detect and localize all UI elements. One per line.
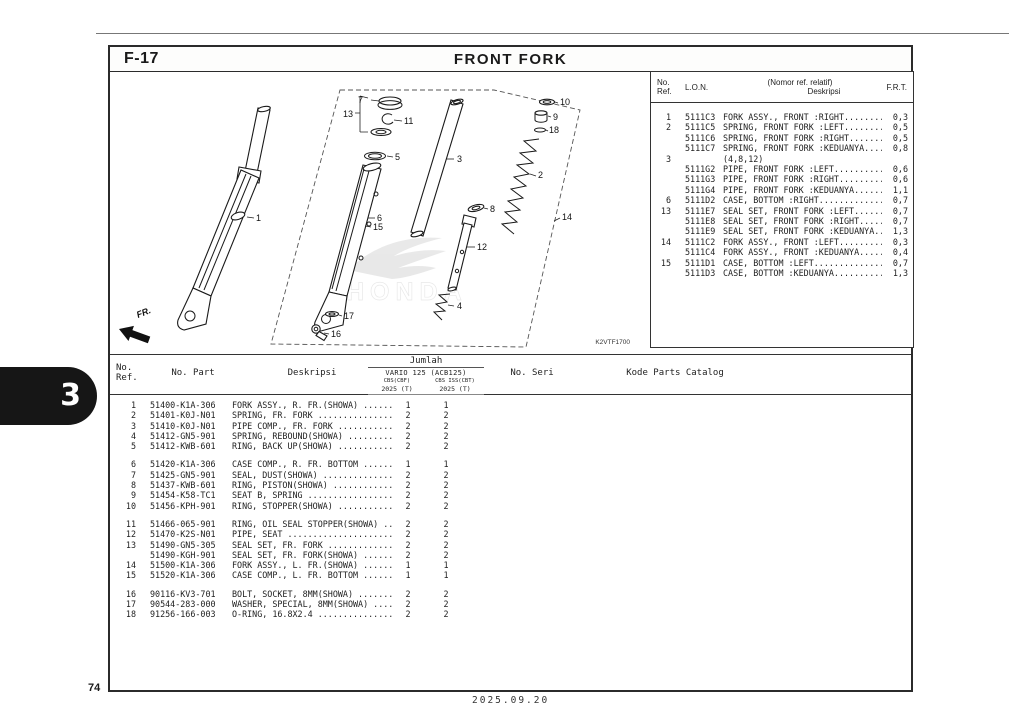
cell-part-number: 51412-GN5-901 (150, 431, 220, 441)
lon-row: 5111E8SEAL SET, FRONT FORK :RIGHT......0… (651, 216, 913, 226)
cell-frt (882, 154, 913, 164)
cell-description: PIPE, SEAT ..................... (232, 529, 392, 539)
cell-ref (651, 164, 671, 174)
parts-row: 651420-K1A-306CASE COMP., R. FR. BOTTOM … (110, 459, 911, 469)
cell-frt: 0,7 (882, 206, 913, 216)
parts-header-kode: Kode Parts Catalog (590, 368, 760, 378)
lon-row: 145111C2FORK ASSY., FRONT :LEFT.........… (651, 237, 913, 247)
callout-11: 11 (404, 116, 413, 126)
chapter-number: 3 (60, 378, 81, 413)
callout-15: 15 (373, 222, 383, 232)
page-number: 74 (88, 682, 100, 694)
cell-lon: 5111D2 (685, 195, 719, 205)
cell-ref: 13 (110, 540, 136, 550)
cell-description: WASHER, SPECIAL, 8MM(SHOWA) .... (232, 599, 392, 609)
cell-qty-cbs: 2 (392, 609, 424, 619)
callout-14: 14 (562, 212, 572, 222)
cell-frt: 0,7 (882, 216, 913, 226)
parts-table: No. Ref. No. Part Deskripsi Jumlah VARIO… (110, 354, 911, 690)
cell-lon: 5111E8 (685, 216, 719, 226)
callout-7: 7 (358, 95, 363, 105)
cell-ref: 11 (110, 519, 136, 529)
diagram-code: K2VTF1700 (595, 339, 630, 346)
cell-ref: 16 (110, 589, 136, 599)
cell-lon: 5111C3 (685, 112, 719, 122)
cell-part-number: 51420-K1A-306 (150, 459, 220, 469)
cell-desc: SPRING, FRONT FORK :RIGHT........ (723, 133, 882, 143)
lon-row: 25111C5SPRING, FRONT FORK :LEFT.........… (651, 122, 913, 132)
cell-description: RING, PISTON(SHOWA) ............ (232, 480, 392, 490)
cell-description: FORK ASSY., R. FR.(SHOWA) ...... (232, 400, 392, 410)
cell-description: O-RING, 16.8X2.4 ............... (232, 609, 392, 619)
lon-header-frt: F.R.T. (875, 83, 907, 92)
cell-part-number: 51412-KWB-601 (150, 441, 220, 451)
callout-8: 8 (490, 204, 495, 214)
callout-18: 18 (549, 125, 559, 135)
lon-row: 5111E9SEAL SET, FRONT FORK :KEDUANYA...1… (651, 226, 913, 236)
cell-part-number: 51410-K0J-N01 (150, 421, 220, 431)
cell-ref (651, 247, 671, 257)
parts-row: 1051456-KPH-901RING, STOPPER(SHOWA) ....… (110, 501, 911, 511)
cell-qty-cbs-iss: 2 (424, 480, 468, 490)
cell-qty-cbs-iss: 1 (424, 459, 468, 469)
cell-description: CASE COMP., L. FR. BOTTOM ...... (232, 570, 392, 580)
cell-desc: FORK ASSY., FRONT :KEDUANYA...... (723, 247, 882, 257)
cell-part-number: 91256-166-003 (150, 609, 220, 619)
cell-qty-cbs-iss: 2 (424, 410, 468, 420)
cell-qty-cbs-iss: 2 (424, 501, 468, 511)
cell-description: PIPE COMP., FR. FORK ........... (232, 421, 392, 431)
cell-qty-cbs: 2 (392, 540, 424, 550)
callout-10: 10 (560, 97, 570, 107)
callout-17: 17 (344, 311, 354, 321)
parts-row: 1451500-K1A-306FORK ASSY., L. FR.(SHOWA)… (110, 560, 911, 570)
cell-part-number: 51401-K0J-N01 (150, 410, 220, 420)
cell-description: SEAL SET, FR. FORK ............. (232, 540, 392, 550)
cell-qty-cbs: 2 (392, 599, 424, 609)
cell-qty-cbs-iss: 2 (424, 470, 468, 480)
cell-desc: PIPE, FRONT FORK :LEFT........... (723, 164, 882, 174)
cell-frt: 0,8 (882, 143, 913, 153)
cell-qty-cbs: 2 (392, 421, 424, 431)
page-top-rule (96, 33, 1009, 34)
cell-description: CASE COMP., R. FR. BOTTOM ...... (232, 459, 392, 469)
cell-desc: CASE, BOTTOM :LEFT............... (723, 258, 882, 268)
callout-5: 5 (395, 152, 400, 162)
cell-qty-cbs-iss: 1 (424, 400, 468, 410)
lon-header-ref: No. Ref. (657, 78, 679, 96)
lon-row: 5111C7SPRING, FRONT FORK :KEDUANYA.....0… (651, 143, 913, 153)
parts-row: 251401-K0J-N01SPRING, FR. FORK .........… (110, 410, 911, 420)
cell-ref: 15 (651, 258, 671, 268)
cell-qty-cbs: 2 (392, 501, 424, 511)
cell-desc: SPRING, FRONT FORK :KEDUANYA..... (723, 143, 882, 153)
cell-qty-cbs-iss: 2 (424, 490, 468, 500)
cell-desc: FORK ASSY., FRONT :LEFT.......... (723, 237, 882, 247)
lon-table-body: 15111C3FORK ASSY., FRONT :RIGHT.........… (651, 103, 913, 279)
callout-3: 3 (457, 154, 462, 164)
parts-row: 751425-GN5-901SEAL, DUST(SHOWA) ........… (110, 470, 911, 480)
cell-desc: PIPE, FRONT FORK :RIGHT.......... (723, 174, 882, 184)
cell-lon: 5111C6 (685, 133, 719, 143)
cell-qty-cbs-iss: 2 (424, 421, 468, 431)
parts-header-seri: No. Seri (492, 368, 572, 378)
cell-part-number: 90116-KV3-701 (150, 589, 220, 599)
parts-header-year-1: 2025 (T) (368, 385, 426, 395)
cell-ref: 14 (651, 237, 671, 247)
cell-ref: 17 (110, 599, 136, 609)
cell-frt: 0,5 (882, 133, 913, 143)
callout-13: 13 (343, 109, 353, 119)
fr-direction-icon: FR. (116, 305, 152, 347)
cell-frt: 1,1 (882, 185, 913, 195)
cell-ref (651, 133, 671, 143)
parts-header-ref: No. Ref. (116, 363, 138, 383)
cell-qty-cbs-iss: 2 (424, 529, 468, 539)
cell-lon: 5111E9 (685, 226, 719, 236)
cell-frt: 0,3 (882, 237, 913, 247)
cell-qty-cbs: 2 (392, 441, 424, 451)
cell-frt: 0,5 (882, 122, 913, 132)
cell-desc: CASE, BOTTOM :RIGHT.............. (723, 195, 882, 205)
cell-description: RING, OIL SEAL STOPPER(SHOWA) .. (232, 519, 392, 529)
cell-lon: 5111G2 (685, 164, 719, 174)
title-bar: F-17 FRONT FORK (110, 47, 911, 72)
lon-row: 65111D2CASE, BOTTOM :RIGHT..............… (651, 195, 913, 205)
lon-row: 5111D3CASE, BOTTOM :KEDUANYA...........1… (651, 268, 913, 278)
cell-part-number: 51470-K2S-N01 (150, 529, 220, 539)
cell-ref: 12 (110, 529, 136, 539)
cell-desc: PIPE, FRONT FORK :KEDUANYA....... (723, 185, 882, 195)
honda-wing-watermark: HONDA (346, 238, 468, 306)
cell-frt: 0,3 (882, 112, 913, 122)
chapter-tab: 3 (0, 367, 97, 425)
cell-frt: 0,7 (882, 195, 913, 205)
cell-qty-cbs: 2 (392, 410, 424, 420)
parts-row: 951454-K58-TC1SEAT B, SPRING ...........… (110, 490, 911, 500)
cell-qty-cbs: 1 (392, 459, 424, 469)
lon-header-desc: (Nomor ref. relatif) Deskripsi (725, 78, 875, 96)
callout-9: 9 (553, 112, 558, 122)
lon-row: 135111E7SEAL SET, FRONT FORK :LEFT......… (651, 206, 913, 216)
cell-desc: SPRING, FRONT FORK :LEFT......... (723, 122, 882, 132)
lon-row: 5111C4FORK ASSY., FRONT :KEDUANYA......0… (651, 247, 913, 257)
cell-qty-cbs: 2 (392, 550, 424, 560)
cell-description: BOLT, SOCKET, 8MM(SHOWA) ....... (232, 589, 392, 599)
cell-lon: 5111C2 (685, 237, 719, 247)
cell-qty-cbs-iss: 2 (424, 431, 468, 441)
cell-desc: SEAL SET, FRONT FORK :KEDUANYA... (723, 226, 882, 236)
cell-qty-cbs-iss: 2 (424, 550, 468, 560)
parts-header-variant-1: CBS(CBF) (368, 378, 426, 384)
cell-qty-cbs: 1 (392, 400, 424, 410)
parts-row: 351410-K0J-N01PIPE COMP., FR. FORK .....… (110, 421, 911, 431)
parts-row: 1690116-KV3-701BOLT, SOCKET, 8MM(SHOWA) … (110, 589, 911, 599)
parts-header-jumlah: Jumlah VARIO 125 (ACB125) CBS(CBF) CBS I… (368, 356, 484, 395)
cell-lon: 5111C7 (685, 143, 719, 153)
parts-table-body: 151400-K1A-306FORK ASSY., R. FR.(SHOWA) … (110, 395, 911, 620)
cell-qty-cbs-iss: 2 (424, 441, 468, 451)
parts-row: 551412-KWB-601RING, BACK UP(SHOWA) .....… (110, 441, 911, 451)
cell-ref: 2 (651, 122, 671, 132)
cell-description: RING, STOPPER(SHOWA) ........... (232, 501, 392, 511)
cell-qty-cbs: 2 (392, 480, 424, 490)
cell-frt: 1,3 (882, 268, 913, 278)
lon-row: 15111C3FORK ASSY., FRONT :RIGHT.........… (651, 112, 913, 122)
lon-reference-table: No. Ref. L.O.N. (Nomor ref. relatif) Des… (650, 71, 914, 348)
cell-part-number: 51456-KPH-901 (150, 501, 220, 511)
cell-description: SEAL SET, FR. FORK(SHOWA) ...... (232, 550, 392, 560)
cell-description: SPRING, FR. FORK ............... (232, 410, 392, 420)
cell-ref (651, 226, 671, 236)
cell-description: SEAT B, SPRING ................. (232, 490, 392, 500)
callout-1: 1 (256, 213, 261, 223)
parts-row: 1251470-K2S-N01PIPE, SEAT ..............… (110, 529, 911, 539)
parts-table-header: No. Ref. No. Part Deskripsi Jumlah VARIO… (110, 355, 911, 395)
cell-frt: 1,3 (882, 226, 913, 236)
parts-row: 1551520-K1A-306CASE COMP., L. FR. BOTTOM… (110, 570, 911, 580)
cell-lon: 5111C5 (685, 122, 719, 132)
fork-spring (502, 139, 539, 234)
cell-ref (651, 216, 671, 226)
cell-part-number: 51490-GN5-305 (150, 540, 220, 550)
parts-group: 1151466-065-901RING, OIL SEAL STOPPER(SH… (110, 519, 911, 581)
cell-part-number: 90544-283-000 (150, 599, 220, 609)
cell-part-number: 51466-065-901 (150, 519, 220, 529)
cell-lon (685, 154, 719, 164)
cell-ref (651, 174, 671, 184)
cell-part-number: 51400-K1A-306 (150, 400, 220, 410)
lon-row: 5111G4PIPE, FRONT FORK :KEDUANYA.......1… (651, 185, 913, 195)
cell-qty-cbs-iss: 1 (424, 560, 468, 570)
cell-ref: 1 (651, 112, 671, 122)
cell-description: RING, BACK UP(SHOWA) ........... (232, 441, 392, 451)
cell-qty-cbs: 1 (392, 560, 424, 570)
parts-header-part: No. Part (150, 368, 236, 378)
parts-group: 151400-K1A-306FORK ASSY., R. FR.(SHOWA) … (110, 400, 911, 451)
parts-row: 151400-K1A-306FORK ASSY., R. FR.(SHOWA) … (110, 400, 911, 410)
parts-group: 651420-K1A-306CASE COMP., R. FR. BOTTOM … (110, 459, 911, 510)
parts-row: 1790544-283-000WASHER, SPECIAL, 8MM(SHOW… (110, 599, 911, 609)
callout-16: 16 (331, 329, 341, 339)
cell-qty-cbs-iss: 2 (424, 609, 468, 619)
cell-part-number: 51490-KGH-901 (150, 550, 220, 560)
parts-row: 851437-KWB-601RING, PISTON(SHOWA) ......… (110, 480, 911, 490)
cell-desc: (4,8,12) (723, 154, 882, 164)
cell-qty-cbs: 2 (392, 470, 424, 480)
cell-qty-cbs-iss: 1 (424, 570, 468, 580)
cell-qty-cbs: 2 (392, 519, 424, 529)
lon-row: 5111G2PIPE, FRONT FORK :LEFT...........0… (651, 164, 913, 174)
cell-lon: 5111E7 (685, 206, 719, 216)
callout-4: 4 (457, 301, 462, 311)
cell-description: SPRING, REBOUND(SHOWA) ......... (232, 431, 392, 441)
cell-ref: 2 (110, 410, 136, 420)
footer-date: 2025.09.20 (472, 695, 549, 706)
page-title: FRONT FORK (110, 51, 911, 68)
cell-ref: 3 (651, 154, 671, 164)
cell-lon: 5111C4 (685, 247, 719, 257)
lon-row: 5111C6SPRING, FRONT FORK :RIGHT........0… (651, 133, 913, 143)
cell-ref (110, 550, 136, 560)
cell-part-number: 51437-KWB-601 (150, 480, 220, 490)
cell-lon: 5111G4 (685, 185, 719, 195)
lon-header-lon: L.O.N. (685, 83, 725, 92)
cell-frt: 0,7 (882, 258, 913, 268)
fork-cap-group (365, 97, 403, 160)
cell-ref: 6 (651, 195, 671, 205)
parts-row: 1151466-065-901RING, OIL SEAL STOPPER(SH… (110, 519, 911, 529)
exploded-diagram: HONDA (110, 72, 650, 354)
lon-row: 155111D1CASE, BOTTOM :LEFT..............… (651, 258, 913, 268)
parts-row: 51490-KGH-901SEAL SET, FR. FORK(SHOWA) .… (110, 550, 911, 560)
cell-ref: 6 (110, 459, 136, 469)
parts-header-variant-2: CBS ISS(CBT) (426, 378, 484, 384)
fork-pipe (410, 98, 463, 238)
cell-part-number: 51425-GN5-901 (150, 470, 220, 480)
parts-row: 1351490-GN5-305SEAL SET, FR. FORK ......… (110, 540, 911, 550)
cell-qty-cbs-iss: 2 (424, 589, 468, 599)
parts-group: 1690116-KV3-701BOLT, SOCKET, 8MM(SHOWA) … (110, 589, 911, 620)
cell-qty-cbs: 2 (392, 431, 424, 441)
cell-ref: 18 (110, 609, 136, 619)
cell-description: FORK ASSY., L. FR.(SHOWA) ...... (232, 560, 392, 570)
lon-table-header: No. Ref. L.O.N. (Nomor ref. relatif) Des… (651, 72, 913, 103)
cell-lon: 5111D3 (685, 268, 719, 278)
cell-desc: SEAL SET, FRONT FORK :RIGHT...... (723, 216, 882, 226)
cell-ref: 13 (651, 206, 671, 216)
cell-part-number: 51500-K1A-306 (150, 560, 220, 570)
cell-ref: 15 (110, 570, 136, 580)
cell-desc: CASE, BOTTOM :KEDUANYA........... (723, 268, 882, 278)
lon-row: 5111G3PIPE, FRONT FORK :RIGHT..........0… (651, 174, 913, 184)
cell-ref: 14 (110, 560, 136, 570)
catalog-page-frame: F-17 FRONT FORK HONDA (108, 45, 913, 692)
parts-row: 451412-GN5-901SPRING, REBOUND(SHOWA) ...… (110, 431, 911, 441)
cell-qty-cbs: 2 (392, 589, 424, 599)
cell-lon: 5111D1 (685, 258, 719, 268)
cell-part-number: 51454-K58-TC1 (150, 490, 220, 500)
cell-frt: 0,6 (882, 174, 913, 184)
cell-ref (651, 185, 671, 195)
cell-ref: 3 (110, 421, 136, 431)
cell-ref (651, 268, 671, 278)
cell-ref: 4 (110, 431, 136, 441)
fr-label: FR. (135, 305, 152, 320)
cell-description: SEAL, DUST(SHOWA) .............. (232, 470, 392, 480)
cell-ref: 1 (110, 400, 136, 410)
cell-ref: 7 (110, 470, 136, 480)
cell-ref: 5 (110, 441, 136, 451)
lon-row: 3(4,8,12) (651, 154, 913, 164)
parts-row: 1891256-166-003O-RING, 16.8X2.4 ........… (110, 609, 911, 619)
cell-part-number: 51520-K1A-306 (150, 570, 220, 580)
cell-qty-cbs: 2 (392, 490, 424, 500)
cell-desc: SEAL SET, FRONT FORK :LEFT....... (723, 206, 882, 216)
cell-ref: 10 (110, 501, 136, 511)
callout-12: 12 (477, 242, 487, 252)
cell-qty-cbs-iss: 2 (424, 519, 468, 529)
parts-header-year-2: 2025 (T) (426, 385, 484, 395)
cell-lon: 5111G3 (685, 174, 719, 184)
cell-qty-cbs-iss: 2 (424, 540, 468, 550)
cell-frt: 0,4 (882, 247, 913, 257)
cell-ref (651, 143, 671, 153)
cell-ref: 9 (110, 490, 136, 500)
cell-desc: FORK ASSY., FRONT :RIGHT......... (723, 112, 882, 122)
callout-2: 2 (538, 170, 543, 180)
cell-qty-cbs: 2 (392, 529, 424, 539)
cell-frt: 0,6 (882, 164, 913, 174)
cell-qty-cbs: 1 (392, 570, 424, 580)
cell-ref: 8 (110, 480, 136, 490)
cell-qty-cbs-iss: 2 (424, 599, 468, 609)
